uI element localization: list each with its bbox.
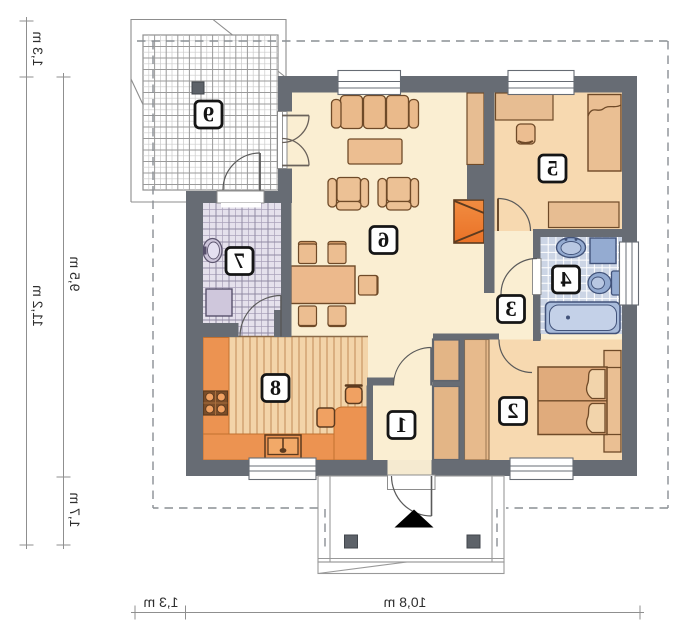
svg-text:11,2 m: 11,2 m xyxy=(30,285,46,327)
svg-text:1: 1 xyxy=(396,412,407,437)
svg-text:1,3 m: 1,3 m xyxy=(30,31,46,66)
svg-text:3: 3 xyxy=(505,296,516,321)
svg-text:10,8 m: 10,8 m xyxy=(384,594,427,610)
svg-text:2: 2 xyxy=(507,398,518,423)
svg-text:9: 9 xyxy=(203,102,214,127)
svg-text:5: 5 xyxy=(547,156,558,181)
svg-text:8: 8 xyxy=(270,375,281,400)
svg-text:1,3 m: 1,3 m xyxy=(143,594,178,610)
svg-text:1,7 m: 1,7 m xyxy=(67,492,83,527)
svg-text:6: 6 xyxy=(378,227,389,252)
svg-text:9,5 m: 9,5 m xyxy=(67,256,83,291)
svg-text:4: 4 xyxy=(560,267,571,292)
svg-text:7: 7 xyxy=(234,248,245,273)
